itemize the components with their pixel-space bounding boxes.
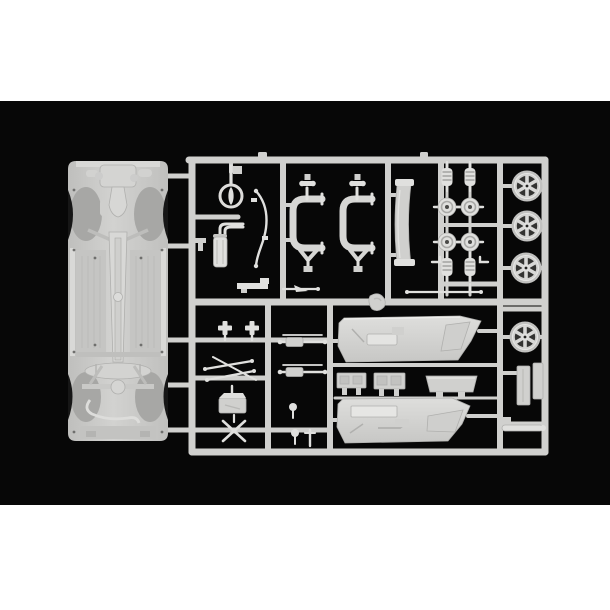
- wheel-1: [512, 171, 543, 202]
- door-panel-1: Door interior panel (upper): [338, 316, 481, 362]
- wheel-4: [510, 322, 541, 353]
- sprue-photo-svg: Light grey model kit sprue containing a …: [0, 0, 610, 610]
- chassis-part: Car chassis / floor pan: [68, 161, 168, 441]
- blob-part: Moulding lump: [369, 294, 385, 311]
- door-panel-2: Door interior panel (lower): [337, 398, 470, 443]
- photo-stage: Light grey model kit sprue containing a …: [0, 0, 610, 610]
- wheel-2: [512, 211, 543, 242]
- radiator-slabs-group: Radiator slabs (x2): [517, 363, 543, 405]
- wheel-3: [511, 253, 542, 284]
